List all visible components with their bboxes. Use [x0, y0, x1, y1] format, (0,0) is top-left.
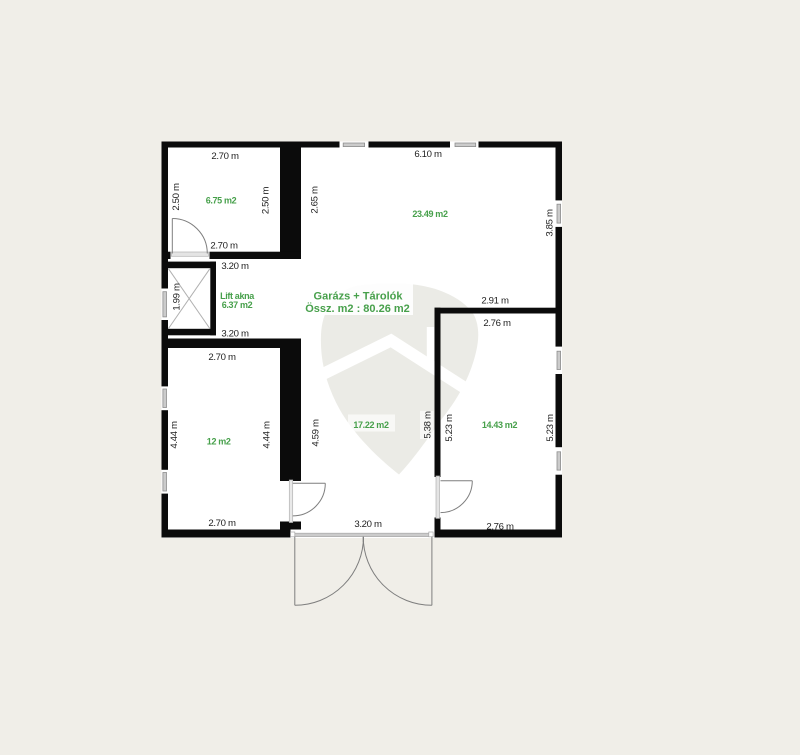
svg-text:2.91 m: 2.91 m — [481, 296, 509, 307]
svg-text:Garázs + Tárolók: Garázs + Tárolók — [314, 291, 404, 303]
svg-text:1.99 m: 1.99 m — [172, 283, 183, 311]
svg-text:2.50 m: 2.50 m — [171, 183, 182, 211]
svg-text:4.44 m: 4.44 m — [262, 421, 273, 449]
svg-text:4.59 m: 4.59 m — [311, 419, 322, 447]
svg-text:2.70 m: 2.70 m — [208, 518, 236, 529]
svg-text:3.85 m: 3.85 m — [545, 209, 556, 237]
svg-text:3.20 m: 3.20 m — [221, 261, 249, 272]
svg-text:2.70 m: 2.70 m — [210, 241, 238, 252]
svg-text:2.65 m: 2.65 m — [310, 186, 321, 214]
svg-text:5.23 m: 5.23 m — [444, 414, 455, 442]
svg-text:5.23 m: 5.23 m — [545, 414, 556, 442]
svg-text:2.70 m: 2.70 m — [211, 151, 239, 162]
svg-text:Össz. m2 : 80.26 m2: Össz. m2 : 80.26 m2 — [305, 302, 410, 315]
svg-text:14.43 m2: 14.43 m2 — [482, 420, 518, 430]
svg-text:4.44 m: 4.44 m — [169, 421, 180, 449]
svg-text:12 m2: 12 m2 — [207, 437, 231, 447]
svg-text:2.70 m: 2.70 m — [208, 352, 236, 363]
svg-text:6.37 m2: 6.37 m2 — [222, 300, 253, 310]
svg-text:6.75 m2: 6.75 m2 — [206, 196, 237, 206]
svg-text:5.38 m: 5.38 m — [423, 411, 434, 439]
svg-text:3.20 m: 3.20 m — [221, 329, 249, 340]
svg-text:17.22 m2: 17.22 m2 — [353, 420, 389, 430]
svg-text:6.10 m: 6.10 m — [414, 149, 442, 160]
svg-text:3.20 m: 3.20 m — [354, 519, 382, 530]
svg-text:2.76 m: 2.76 m — [486, 522, 514, 533]
svg-text:2.76 m: 2.76 m — [483, 318, 511, 329]
svg-text:23.49 m2: 23.49 m2 — [412, 209, 448, 219]
svg-text:2.50 m: 2.50 m — [261, 187, 272, 215]
